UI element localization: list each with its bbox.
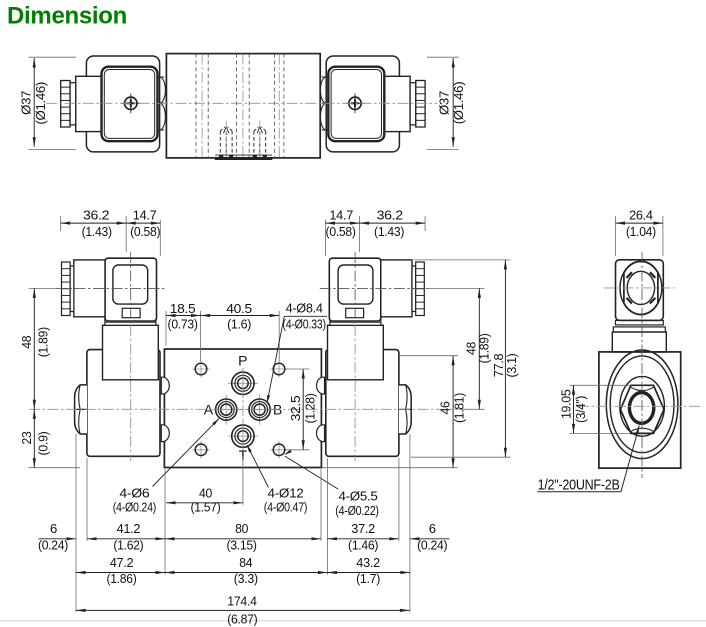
svg-text:(3.1): (3.1) xyxy=(504,354,519,378)
svg-text:14.7: 14.7 xyxy=(133,208,157,223)
svg-text:4-Ø6: 4-Ø6 xyxy=(119,485,149,500)
svg-text:23: 23 xyxy=(19,432,34,445)
svg-text:18.5: 18.5 xyxy=(170,301,196,316)
svg-text:(6.87): (6.87) xyxy=(227,612,257,627)
svg-text:(0.24): (0.24) xyxy=(417,537,447,552)
svg-text:37.2: 37.2 xyxy=(351,521,375,536)
svg-text:(0.73): (0.73) xyxy=(168,316,198,331)
svg-text:Ø37: Ø37 xyxy=(436,91,451,115)
svg-text:36.2: 36.2 xyxy=(83,208,109,223)
svg-text:(1.86): (1.86) xyxy=(106,571,136,586)
svg-text:(0.24): (0.24) xyxy=(38,537,68,552)
svg-text:14.7: 14.7 xyxy=(329,208,353,223)
svg-text:(1.43): (1.43) xyxy=(374,224,404,239)
svg-text:47.2: 47.2 xyxy=(110,555,134,570)
svg-text:6: 6 xyxy=(429,521,436,536)
svg-text:46: 46 xyxy=(438,402,453,415)
svg-text:40.5: 40.5 xyxy=(226,301,252,316)
svg-text:48: 48 xyxy=(19,336,34,349)
svg-text:(Ø1.46): (Ø1.46) xyxy=(33,82,48,125)
svg-text:(1.89): (1.89) xyxy=(477,333,492,363)
svg-text:26.4: 26.4 xyxy=(629,208,653,223)
svg-text:(1.62): (1.62) xyxy=(113,537,143,552)
svg-text:(0.58): (0.58) xyxy=(130,224,160,239)
svg-text:(Ø1.46): (Ø1.46) xyxy=(451,82,466,125)
svg-text:41.2: 41.2 xyxy=(117,521,141,536)
svg-text:1/2"-20UNF-2B: 1/2"-20UNF-2B xyxy=(538,477,620,494)
svg-text:(4-Ø0.22): (4-Ø0.22) xyxy=(335,503,378,518)
svg-text:Ø37: Ø37 xyxy=(19,91,34,115)
svg-text:32.5: 32.5 xyxy=(288,396,303,422)
svg-text:P: P xyxy=(238,353,247,369)
svg-text:(4-Ø0.24): (4-Ø0.24) xyxy=(113,500,156,515)
svg-text:40: 40 xyxy=(199,485,212,500)
svg-text:(1.43): (1.43) xyxy=(82,224,112,239)
svg-text:(4-Ø0.33): (4-Ø0.33) xyxy=(282,316,325,331)
svg-text:84: 84 xyxy=(239,555,252,570)
svg-text:(1.6): (1.6) xyxy=(227,316,251,331)
svg-text:(1.28): (1.28) xyxy=(302,393,317,423)
svg-text:(0.9): (0.9) xyxy=(35,432,50,456)
svg-text:(1.89): (1.89) xyxy=(35,327,50,357)
svg-text:80: 80 xyxy=(235,521,248,536)
svg-text:(1.46): (1.46) xyxy=(348,537,378,552)
svg-text:36.2: 36.2 xyxy=(377,208,403,223)
svg-text:4-Ø5.5: 4-Ø5.5 xyxy=(339,489,378,504)
svg-text:Dimension: Dimension xyxy=(7,3,127,30)
svg-text:6: 6 xyxy=(50,521,57,536)
svg-text:(1.7): (1.7) xyxy=(356,571,380,586)
svg-text:19.05: 19.05 xyxy=(559,390,574,420)
svg-text:(1.57): (1.57) xyxy=(190,500,220,515)
svg-text:(1.04): (1.04) xyxy=(626,224,656,239)
svg-text:(3.3): (3.3) xyxy=(234,571,258,586)
svg-text:(1.81): (1.81) xyxy=(452,393,467,423)
svg-text:(4-Ø0.47): (4-Ø0.47) xyxy=(264,500,307,515)
svg-text:(0.58): (0.58) xyxy=(326,224,356,239)
svg-text:4-Ø8.4: 4-Ø8.4 xyxy=(286,301,323,316)
svg-text:174.4: 174.4 xyxy=(227,593,257,608)
svg-text:(3/4"): (3/4") xyxy=(573,396,588,423)
svg-text:(3.15): (3.15) xyxy=(227,537,257,552)
svg-text:4-Ø12: 4-Ø12 xyxy=(268,485,304,500)
svg-text:43.2: 43.2 xyxy=(356,555,380,570)
